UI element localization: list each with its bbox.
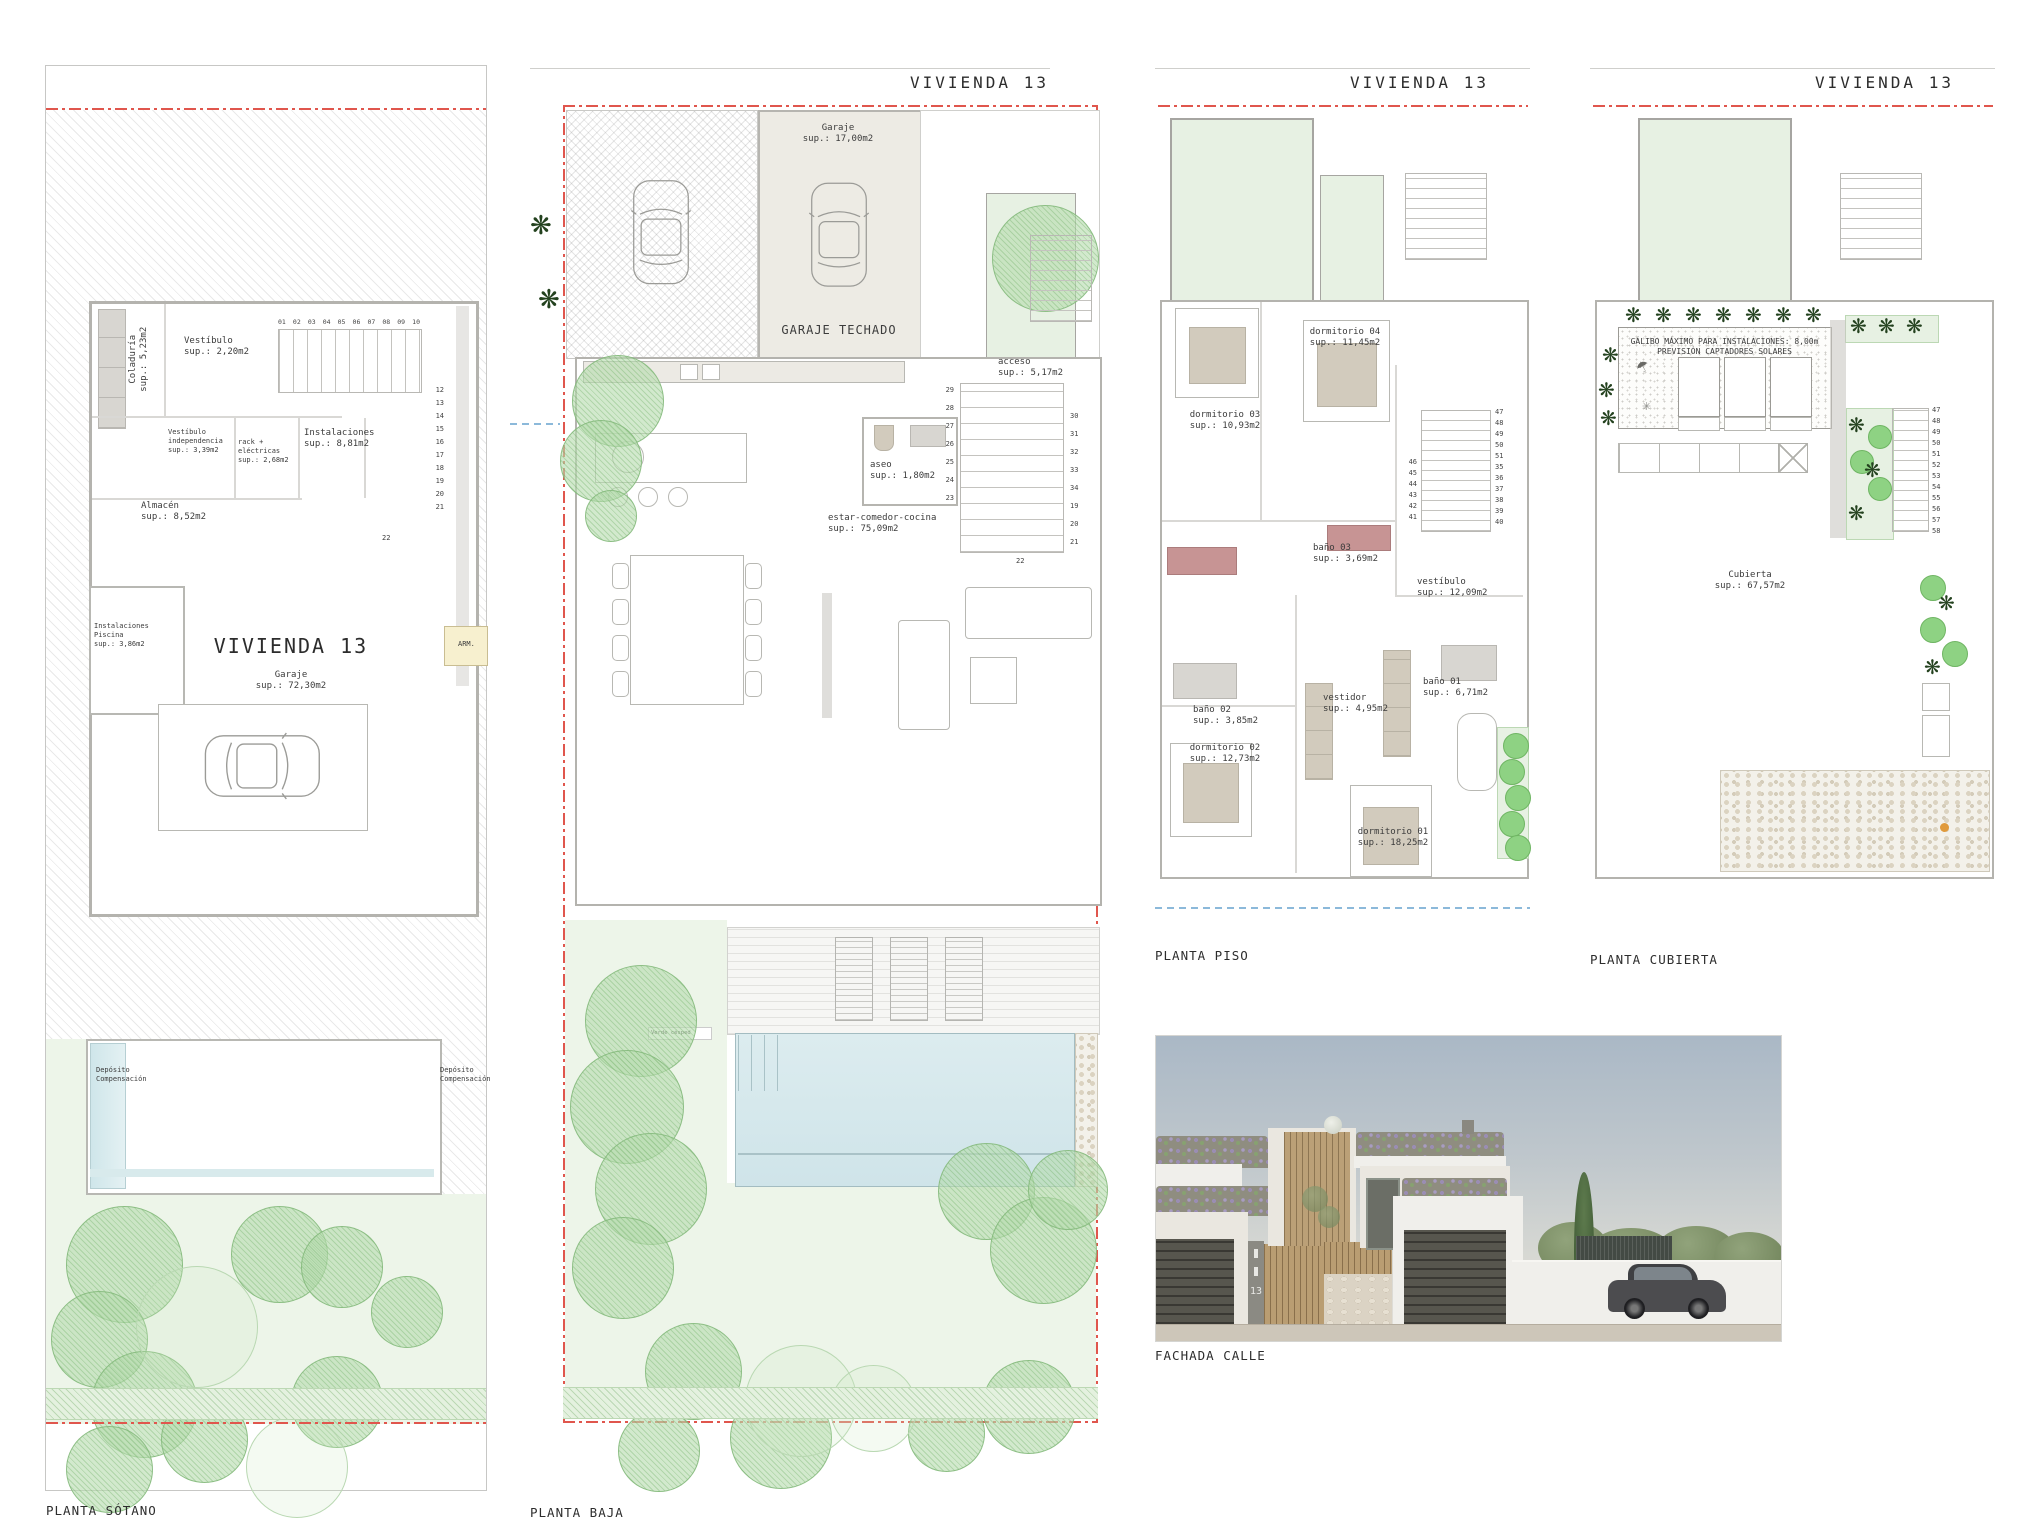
room-label-aseo: aseo sup.: 1,80m2 bbox=[870, 460, 935, 483]
caption-planta-baja: PLANTA BAJA bbox=[530, 1505, 624, 1520]
car-top-view bbox=[808, 145, 870, 325]
caption-planta-sotano: PLANTA SÓTANO bbox=[46, 1503, 157, 1518]
tree bbox=[1499, 811, 1525, 837]
stair-number: 37 bbox=[1495, 484, 1513, 495]
antenna-icon bbox=[1642, 395, 1651, 414]
stair-number: 12 bbox=[426, 384, 444, 397]
deposito-label-right: Depósito Compensación bbox=[440, 1066, 486, 1084]
tree bbox=[618, 1410, 700, 1492]
mattress bbox=[1317, 343, 1377, 407]
stair-number: 31 bbox=[1070, 425, 1090, 443]
planting-strip bbox=[563, 1387, 1098, 1419]
stair-number: 14 bbox=[426, 410, 444, 423]
room-label-almacen: Almacén sup.: 8,52m2 bbox=[141, 501, 206, 524]
plant bbox=[1318, 1206, 1340, 1228]
tree bbox=[66, 1426, 153, 1513]
car-wheel bbox=[1688, 1298, 1709, 1319]
stair-numbers-right: 4748495051353637383940 bbox=[1495, 407, 1513, 528]
entry-gate bbox=[1264, 1244, 1324, 1324]
wall bbox=[92, 498, 302, 500]
stair-number: 07 bbox=[367, 318, 375, 326]
stair-number: 29 bbox=[934, 381, 954, 399]
stair-number: 36 bbox=[1495, 473, 1513, 484]
stair-number: 47 bbox=[1495, 407, 1513, 418]
stair-number: 52 bbox=[1932, 460, 1950, 471]
stair-number: 17 bbox=[426, 449, 444, 462]
tree-outline bbox=[136, 1266, 258, 1388]
stair-number: 46 bbox=[1399, 457, 1417, 468]
stool bbox=[668, 487, 688, 507]
room-label-rack: rack + eléctricas sup.: 2,68m2 bbox=[238, 438, 296, 464]
plot-boundary-line bbox=[1593, 105, 1993, 107]
room-label-dormitorio02: dormitorio 02 sup.: 12,73m2 bbox=[1165, 743, 1285, 766]
wall bbox=[1156, 1212, 1244, 1242]
stair-numbers-top: 01020304050607080910 bbox=[278, 318, 420, 326]
stair-number-22: 22 bbox=[382, 534, 390, 543]
stair-number-22: 22 bbox=[1016, 557, 1024, 566]
chair bbox=[612, 671, 629, 697]
stair-number: 03 bbox=[308, 318, 316, 326]
rooftop-unit bbox=[1922, 683, 1950, 711]
tree-dark-icon bbox=[1878, 316, 1904, 342]
fireplace-wall bbox=[822, 593, 832, 718]
flower-ball bbox=[1324, 1116, 1342, 1134]
room-label-vestibulo: vestíbulo sup.: 12,09m2 bbox=[1417, 577, 1487, 600]
tree bbox=[1505, 785, 1531, 811]
tree bbox=[301, 1226, 383, 1308]
stair-number: 05 bbox=[338, 318, 346, 326]
stair-number: 49 bbox=[1495, 429, 1513, 440]
stair-number: 24 bbox=[934, 471, 954, 489]
stair-number: 49 bbox=[1932, 427, 1950, 438]
room-label-acceso: acceso sup.: 5,17m2 bbox=[998, 357, 1063, 380]
tree-dark-icon bbox=[1938, 593, 1964, 619]
stair-number: 23 bbox=[934, 489, 954, 507]
house-number: 13 bbox=[1246, 1286, 1266, 1297]
solar-panel bbox=[1770, 357, 1812, 417]
room-label-garaje: Garaje sup.: 17,00m2 bbox=[778, 123, 898, 146]
stair-number: 15 bbox=[426, 423, 444, 436]
solar-panel bbox=[1678, 357, 1720, 417]
wall bbox=[1395, 365, 1397, 595]
sun-lounger bbox=[890, 937, 928, 1021]
stair-number: 01 bbox=[278, 318, 286, 326]
room-label-bano03: baño 03 sup.: 3,69m2 bbox=[1313, 543, 1378, 566]
stair-number: 09 bbox=[397, 318, 405, 326]
room-label-cubierta: Cubierta sup.: 67,57m2 bbox=[1680, 570, 1820, 593]
street-ground bbox=[1156, 1324, 1781, 1342]
room-label-instalaciones: Instalaciones sup.: 8,81m2 bbox=[304, 428, 374, 451]
wall bbox=[298, 418, 300, 498]
compensation-tank-left bbox=[90, 1043, 126, 1189]
plot-boundary-line bbox=[46, 1422, 486, 1424]
stair-core-wall bbox=[1830, 320, 1846, 538]
chair bbox=[612, 635, 629, 661]
stair-number: 08 bbox=[382, 318, 390, 326]
skylight bbox=[1778, 443, 1808, 473]
chair bbox=[745, 599, 762, 625]
stair-number: 43 bbox=[1399, 490, 1417, 501]
chair bbox=[745, 563, 762, 589]
tree bbox=[1503, 733, 1529, 759]
vivienda-header: VIVIENDA 13 bbox=[1350, 73, 1530, 92]
sun-lounger bbox=[945, 937, 983, 1021]
wc bbox=[874, 425, 894, 451]
rooftop-unit bbox=[1922, 715, 1950, 757]
wall bbox=[92, 416, 342, 418]
stair-number: 20 bbox=[426, 488, 444, 501]
wall-pier bbox=[1234, 1212, 1248, 1324]
stair-number: 50 bbox=[1495, 440, 1513, 451]
stair-number: 25 bbox=[934, 453, 954, 471]
tree bbox=[1505, 835, 1531, 861]
tree bbox=[1868, 425, 1892, 449]
stair-number: 57 bbox=[1932, 515, 1950, 526]
tree bbox=[560, 420, 642, 502]
stairs bbox=[278, 329, 422, 393]
terrace-void bbox=[1638, 118, 1792, 322]
room-label-bano02: baño 02 sup.: 3,85m2 bbox=[1193, 705, 1258, 728]
stair-number: 50 bbox=[1932, 438, 1950, 449]
room-label-dormitorio01: dormitorio 01 sup.: 18,25m2 bbox=[1333, 827, 1453, 850]
stair-number: 39 bbox=[1495, 506, 1513, 517]
vivienda-title: VIVIENDA 13 bbox=[141, 634, 441, 659]
tree-outline bbox=[246, 1416, 348, 1518]
stair-number: 19 bbox=[1070, 497, 1090, 515]
stair-number: 35 bbox=[1495, 462, 1513, 473]
stairs bbox=[1421, 410, 1491, 532]
pool-steps bbox=[738, 1035, 790, 1091]
mattress bbox=[1183, 763, 1239, 823]
stair-number: 40 bbox=[1495, 517, 1513, 528]
solar-panel-base bbox=[1678, 417, 1720, 431]
stair-number: 44 bbox=[1399, 479, 1417, 490]
car-wheel bbox=[1624, 1298, 1645, 1319]
stair-number: 27 bbox=[934, 417, 954, 435]
chimney bbox=[1462, 1120, 1474, 1134]
stair-numbers-left: 464544434241 bbox=[1399, 457, 1417, 523]
garage-door bbox=[1156, 1239, 1234, 1324]
tree bbox=[585, 490, 637, 542]
stair-number: 32 bbox=[1070, 443, 1090, 461]
sink bbox=[680, 364, 698, 380]
stair-number: 19 bbox=[426, 475, 444, 488]
entry-steps bbox=[1030, 235, 1092, 322]
doorbell-light bbox=[1254, 1267, 1258, 1276]
service-line bbox=[1155, 907, 1530, 909]
stair-number: 20 bbox=[1070, 515, 1090, 533]
tree bbox=[572, 1217, 674, 1319]
facade-render: 13 bbox=[1155, 1035, 1782, 1342]
sink bbox=[702, 364, 720, 380]
panel-planta-cubierta: VIVIENDA 13 GÁLIBO MÁXIMO PARA INSTALACI… bbox=[1590, 65, 1995, 955]
solar-panel-base bbox=[1770, 417, 1812, 431]
room-label-estar: estar-comedor-cocina sup.: 75,09m2 bbox=[828, 513, 998, 536]
room-label-vestibulo: Vestíbulo sup.: 2,20m2 bbox=[184, 336, 249, 359]
room-label-vestidor: vestidor sup.: 4,95m2 bbox=[1323, 693, 1388, 716]
stair-number: 18 bbox=[426, 462, 444, 475]
stair-number: 48 bbox=[1495, 418, 1513, 429]
wall bbox=[1162, 520, 1395, 522]
storage-row bbox=[1618, 443, 1780, 473]
chair bbox=[612, 599, 629, 625]
mattress bbox=[1189, 327, 1246, 384]
vivienda-header: VIVIENDA 13 bbox=[910, 73, 1100, 92]
tree-dark-icon bbox=[1924, 657, 1950, 683]
stair-number: 34 bbox=[1070, 479, 1090, 497]
plot-boundary-line bbox=[1158, 105, 1528, 107]
wall bbox=[234, 418, 236, 498]
gravel-deck bbox=[1720, 770, 1990, 872]
tree bbox=[1868, 477, 1892, 501]
stair-numbers-side: 12131415161718192021 bbox=[426, 384, 444, 514]
closet bbox=[98, 309, 126, 429]
tree bbox=[1499, 759, 1525, 785]
room-label-coladuria: Coladuría sup.: 5,23m2 bbox=[128, 314, 151, 404]
plan-sheet: 01020304050607080910 1213141516171819202… bbox=[0, 0, 2040, 1530]
stairs bbox=[1892, 408, 1929, 532]
dining-table bbox=[630, 555, 744, 705]
room-label-dormitorio03: dormitorio 03 sup.: 10,93m2 bbox=[1165, 410, 1285, 433]
stair-number: 02 bbox=[293, 318, 301, 326]
galibo-note: GÁLIBO MÁXIMO PARA INSTALACIONES: 8,00m … bbox=[1622, 337, 1827, 357]
stair-number: 13 bbox=[426, 397, 444, 410]
panel-planta-baja: VIVIENDA 13 Garaje sup.: 17,00m2 GARAJE … bbox=[530, 65, 1105, 1490]
stair-number: 47 bbox=[1932, 405, 1950, 416]
garage-door bbox=[1404, 1230, 1506, 1324]
stair-number: 56 bbox=[1932, 504, 1950, 515]
pool-edge bbox=[738, 1153, 1070, 1155]
terrace-void bbox=[1170, 118, 1314, 322]
chair bbox=[745, 635, 762, 661]
tree bbox=[1028, 1150, 1108, 1230]
stair-number: 41 bbox=[1399, 512, 1417, 523]
stair-numbers-left: 29282726252423 bbox=[934, 381, 954, 507]
stair-number: 28 bbox=[934, 399, 954, 417]
drain-dot bbox=[1940, 823, 1949, 832]
stair-number: 30 bbox=[1070, 407, 1090, 425]
garaje-techado-label: GARAJE TECHADO bbox=[758, 323, 920, 338]
stair-number: 53 bbox=[1932, 471, 1950, 482]
plot-boundary-line bbox=[563, 105, 1098, 107]
room-label-bano01: baño 01 sup.: 6,71m2 bbox=[1423, 677, 1488, 700]
tree bbox=[371, 1276, 443, 1348]
tree-dark-icon bbox=[530, 213, 556, 239]
pool-water-edge bbox=[90, 1169, 434, 1177]
sheet-line bbox=[530, 68, 1050, 69]
stair-number: 04 bbox=[323, 318, 331, 326]
sofa bbox=[898, 620, 950, 730]
tree-dark-icon bbox=[1906, 316, 1932, 342]
stairs bbox=[1405, 173, 1487, 260]
solar-panel bbox=[1724, 357, 1766, 417]
solar-panel-base bbox=[1724, 417, 1766, 431]
stone-wall bbox=[1324, 1274, 1392, 1324]
stair-number: 45 bbox=[1399, 468, 1417, 479]
stair-numbers-right: 3031323334192021 bbox=[1070, 407, 1090, 551]
coffee-table bbox=[970, 657, 1017, 704]
shower bbox=[1441, 645, 1497, 681]
chair bbox=[612, 563, 629, 589]
stair-number: 51 bbox=[1932, 449, 1950, 460]
garden bbox=[46, 1039, 86, 1194]
wall bbox=[1295, 595, 1297, 873]
doorbell-light bbox=[1254, 1249, 1258, 1258]
bench bbox=[1167, 547, 1237, 575]
stair-number: 55 bbox=[1932, 493, 1950, 504]
vivienda-header: VIVIENDA 13 bbox=[1815, 73, 1995, 92]
roof-hedge bbox=[1356, 1132, 1504, 1158]
tree-dark-icon bbox=[1850, 316, 1876, 342]
caption-fachada-calle: FACHADA CALLE bbox=[1155, 1348, 1266, 1363]
armario-label: ARM. bbox=[458, 640, 475, 649]
stair-number: 10 bbox=[412, 318, 420, 326]
service-line bbox=[510, 423, 560, 425]
stair-numbers: 474849505152535455565758 bbox=[1932, 405, 1950, 537]
stair-number: 06 bbox=[353, 318, 361, 326]
stool bbox=[638, 487, 658, 507]
panel-planta-piso: VIVIENDA 13 dormitorio 03 sup.: 10,93m2 … bbox=[1155, 65, 1530, 955]
room-label-dormitorio04: dormitorio 04 sup.: 11,45m2 bbox=[1285, 327, 1405, 350]
deposito-label-left: Depósito Compensación bbox=[96, 1066, 170, 1084]
shower bbox=[1173, 663, 1237, 699]
stair-number: 26 bbox=[934, 435, 954, 453]
stair-number: 33 bbox=[1070, 461, 1090, 479]
stair-number: 38 bbox=[1495, 495, 1513, 506]
sheet-line bbox=[1155, 68, 1530, 69]
stairs bbox=[1840, 173, 1922, 260]
sofa bbox=[965, 587, 1092, 639]
stair-number: 42 bbox=[1399, 501, 1417, 512]
bathtub bbox=[1457, 713, 1497, 791]
room-label-vestibulo-independencia: Vestíbulo independencia sup.: 3,39m2 bbox=[168, 428, 223, 454]
chair bbox=[745, 671, 762, 697]
car-top-view bbox=[202, 731, 322, 801]
sheet-line bbox=[1590, 68, 1995, 69]
planting-strip bbox=[46, 1388, 486, 1420]
tree-dark-icon bbox=[538, 287, 564, 313]
wall bbox=[164, 304, 166, 418]
caption-planta-piso: PLANTA PISO bbox=[1155, 948, 1249, 963]
sun-lounger bbox=[835, 937, 873, 1021]
stair-number: 21 bbox=[1070, 533, 1090, 551]
stair-number: 16 bbox=[426, 436, 444, 449]
stair-number: 58 bbox=[1932, 526, 1950, 537]
stair-number: 54 bbox=[1932, 482, 1950, 493]
room-label-garaje: Garaje sup.: 72,30m2 bbox=[141, 670, 441, 693]
tree-dark-icon bbox=[1848, 503, 1874, 529]
caption-planta-cubierta: PLANTA CUBIERTA bbox=[1590, 952, 1718, 967]
tree bbox=[1920, 617, 1946, 643]
car-top-view bbox=[630, 135, 692, 330]
stair-number: 21 bbox=[426, 501, 444, 514]
panel-planta-sotano: 01020304050607080910 1213141516171819202… bbox=[45, 65, 487, 1491]
stair-number: 51 bbox=[1495, 451, 1513, 462]
car-window bbox=[1634, 1267, 1692, 1281]
stair-number: 48 bbox=[1932, 416, 1950, 427]
